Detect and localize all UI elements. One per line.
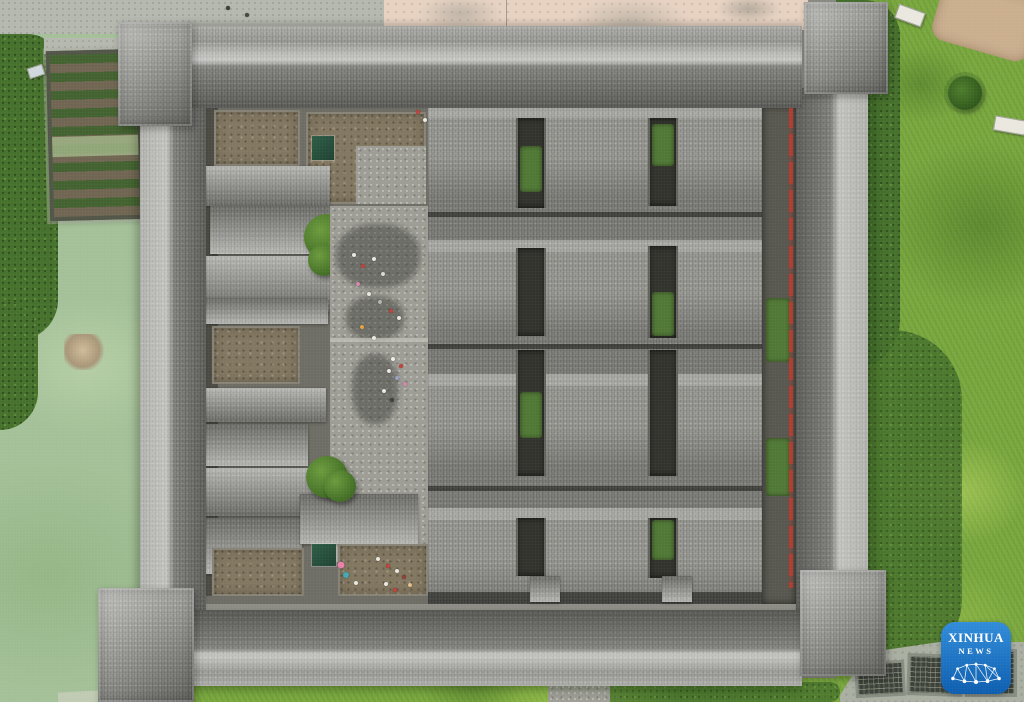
inner-roof <box>206 298 328 324</box>
xinhua-news-watermark: XINHUA NEWS <box>941 622 1011 694</box>
inner-roof <box>206 424 308 466</box>
perimeter-wall-east <box>796 88 868 648</box>
roof-gutter <box>428 212 762 217</box>
slot-end-roof <box>662 576 692 602</box>
courtyard-slot <box>516 518 546 576</box>
moss-patch <box>766 438 790 496</box>
tree-canopy <box>324 470 356 502</box>
corner-tower-southwest <box>98 588 194 702</box>
walk-path-south <box>548 684 610 702</box>
moss-patch <box>652 124 674 166</box>
roof-gutter <box>428 344 762 349</box>
watermark-title: XINHUA <box>941 631 1011 644</box>
corner-tower-northeast <box>804 2 888 94</box>
perimeter-wall-south <box>178 610 802 686</box>
lakeside-grass-lower <box>0 300 38 430</box>
paved-terrace <box>356 146 426 204</box>
watermark-subtitle: NEWS <box>941 647 1011 656</box>
hall-roofs <box>428 106 762 604</box>
red-railing <box>789 106 793 588</box>
moss-patch <box>520 392 542 438</box>
slot-end-roof <box>530 576 560 602</box>
wet-stain <box>352 354 398 424</box>
shed-roof <box>312 136 334 160</box>
dirt-courtyard <box>212 326 300 384</box>
garden-row-highlight <box>52 135 138 157</box>
moss-patch <box>652 292 674 336</box>
wet-stain <box>346 296 404 340</box>
aerial-photo: XINHUA NEWS <box>0 0 1024 702</box>
roof-gutter-south <box>428 592 762 604</box>
corner-tower-southeast <box>800 570 886 676</box>
shed-roof <box>312 544 336 566</box>
courtyard-slot <box>516 248 546 336</box>
inner-roof <box>206 166 330 206</box>
stone-steps <box>330 338 428 342</box>
wet-stain <box>336 224 420 288</box>
perimeter-wall-west <box>140 96 206 648</box>
moss-patch <box>520 146 542 192</box>
inner-roof <box>206 388 326 422</box>
xinhua-network-bridge-icon <box>949 660 1003 684</box>
corner-tower-northwest <box>118 22 192 126</box>
roof-gutter <box>428 486 762 491</box>
courtyard-cross-roof <box>300 494 418 544</box>
dirt-courtyard <box>212 548 304 596</box>
pavement-joint <box>506 0 507 28</box>
dirt-courtyard <box>338 544 428 596</box>
moss-patch <box>766 298 790 362</box>
dirt-courtyard <box>214 110 300 166</box>
pond-islet <box>64 334 106 370</box>
round-bush <box>948 76 982 110</box>
courtyard-slot <box>648 350 678 476</box>
moss-patch <box>652 520 674 560</box>
perimeter-wall-north <box>182 26 802 108</box>
